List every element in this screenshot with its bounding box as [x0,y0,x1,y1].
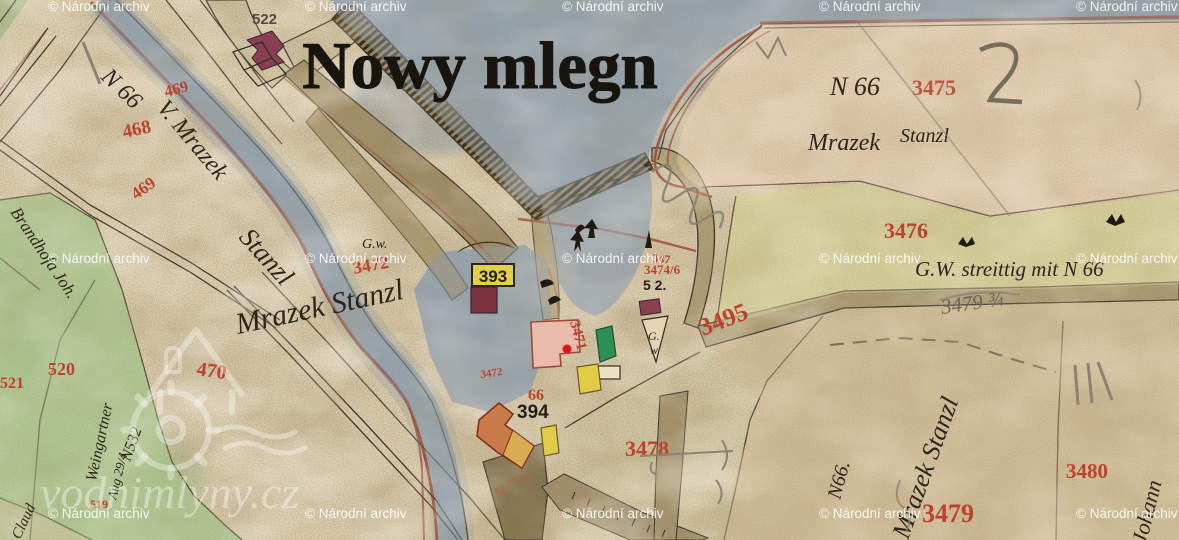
svg-text:© Národní archiv: © Národní archiv [305,506,407,521]
svg-text:© Národní archiv: © Národní archiv [562,506,664,521]
svg-text:© Národní archiv: © Národní archiv [1076,0,1178,14]
svg-text:© Národní archiv: © Národní archiv [819,0,921,14]
svg-text:© Národní archiv: © Národní archiv [48,506,150,521]
svg-text:© Národní archiv: © Národní archiv [48,251,150,266]
svg-text:© Národní archiv: © Národní archiv [305,251,407,266]
svg-text:© Národní archiv: © Národní archiv [562,251,664,266]
svg-text:© Národní archiv: © Národní archiv [562,0,664,14]
svg-text:© Národní archiv: © Národní archiv [819,251,921,266]
svg-text:© Národní archiv: © Národní archiv [1076,251,1178,266]
svg-text:© Národní archiv: © Národní archiv [48,0,150,14]
svg-text:© Národní archiv: © Národní archiv [305,0,407,14]
svg-text:© Národní archiv: © Národní archiv [819,506,921,521]
svg-text:© Národní archiv: © Národní archiv [1076,506,1178,521]
